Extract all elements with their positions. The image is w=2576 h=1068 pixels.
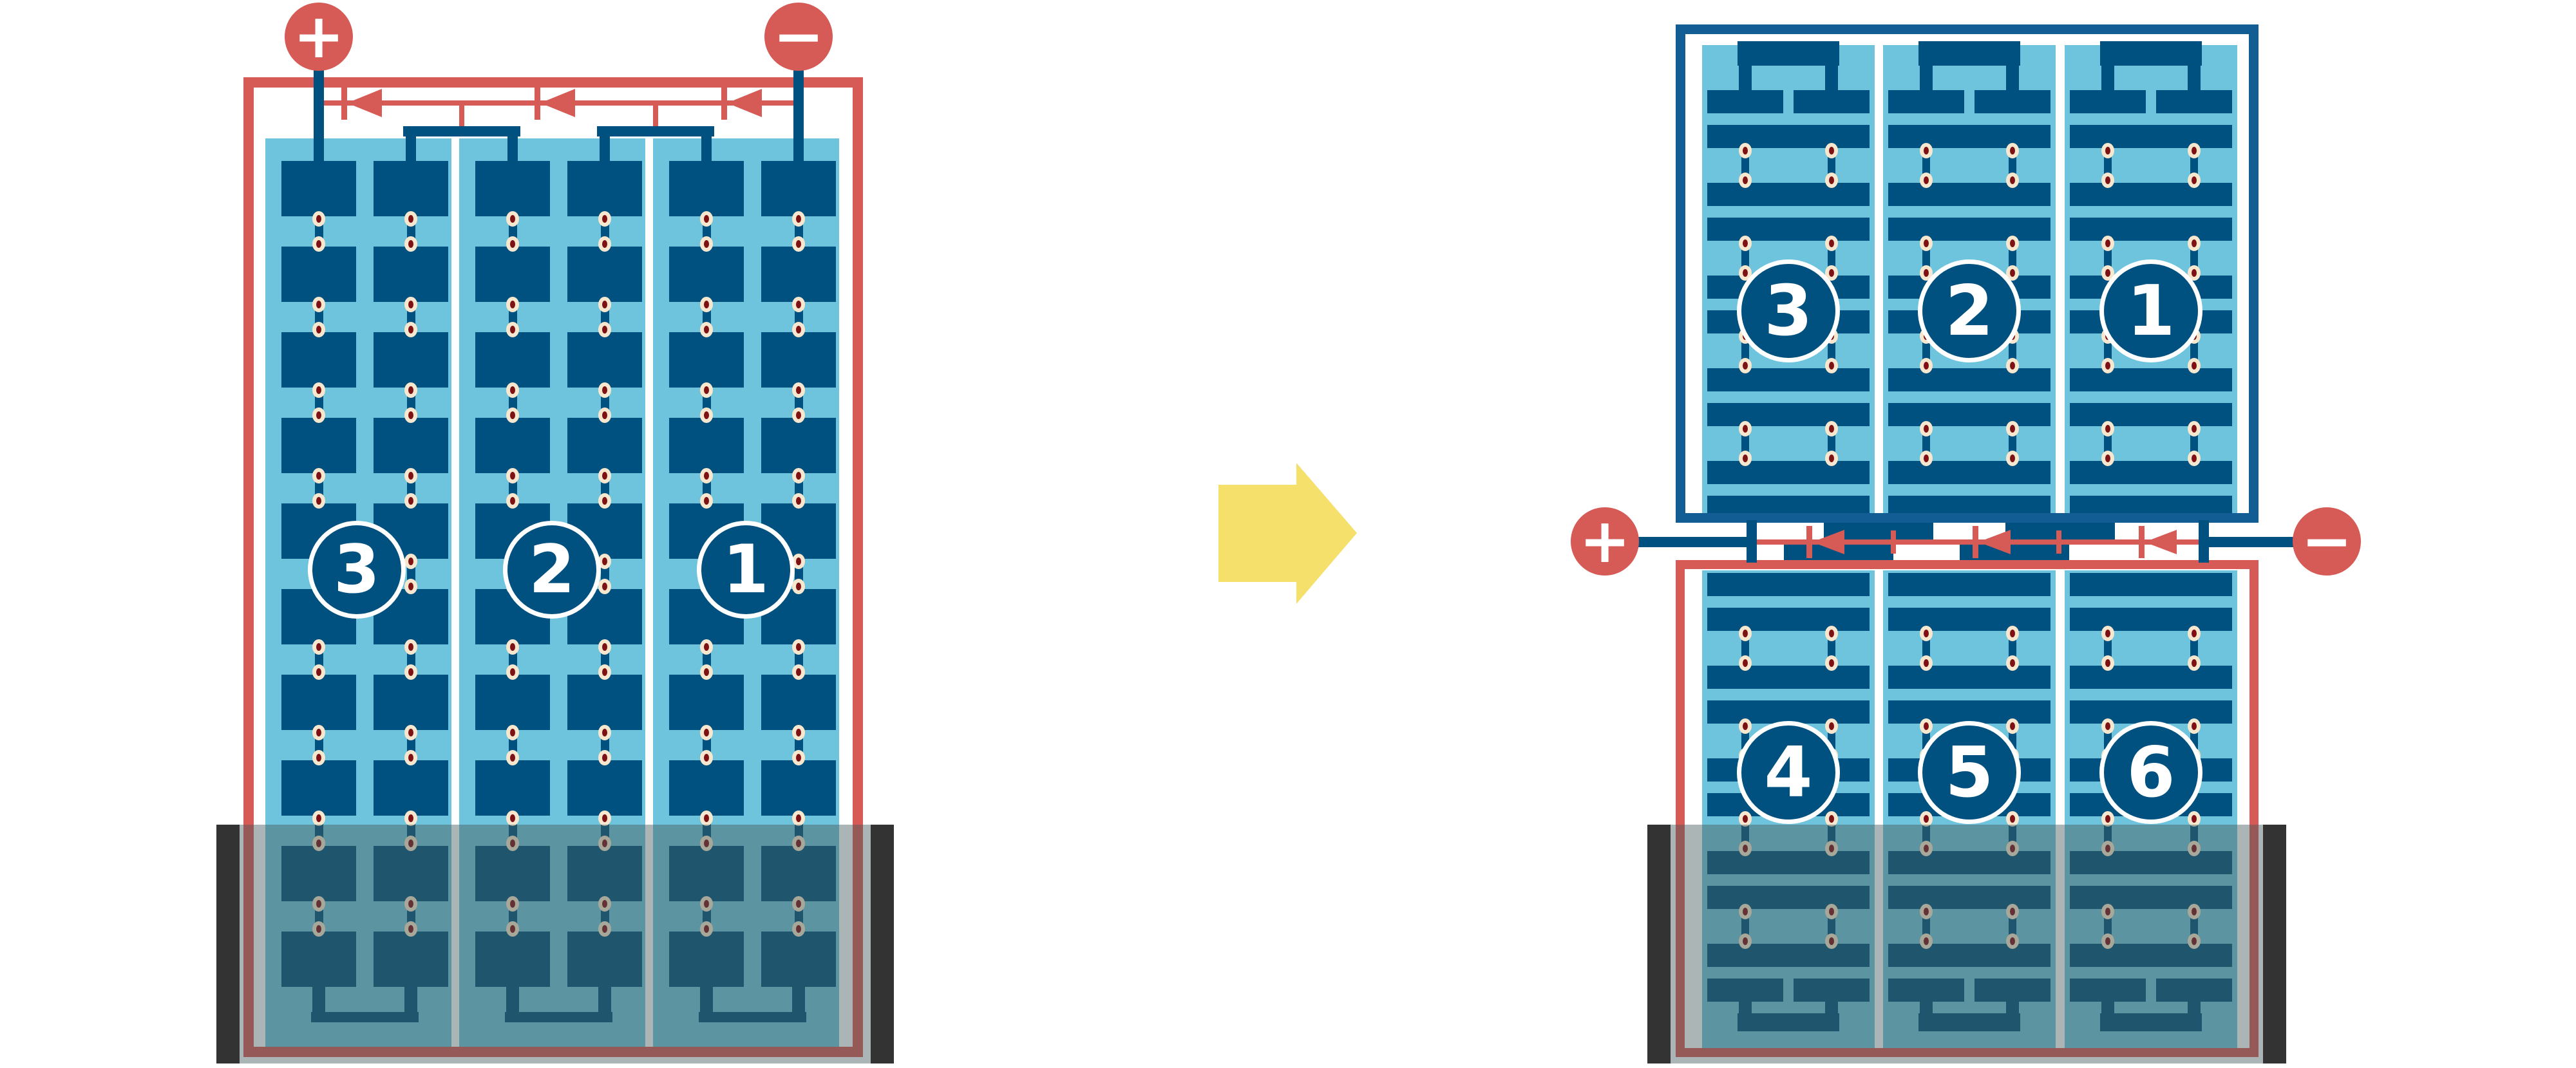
diode-cathode-bar bbox=[341, 86, 347, 120]
shade-overlay bbox=[216, 825, 894, 1063]
positive-terminal-icon: + bbox=[1571, 507, 1639, 576]
negative-terminal-icon-label: − bbox=[773, 6, 824, 68]
diode-cathode-bar bbox=[1973, 526, 1978, 558]
substring-jumper-top-leg bbox=[600, 131, 610, 165]
diode-tap-wire bbox=[459, 106, 464, 126]
substring-jumper-top-leg bbox=[2006, 64, 2019, 94]
substring-jumper-top-bar bbox=[2100, 41, 2202, 66]
diode-junction-tick bbox=[2056, 530, 2061, 554]
substring-number: 5 bbox=[1945, 733, 1993, 813]
diode-arrow bbox=[540, 89, 575, 117]
diode-cathode-bar bbox=[721, 86, 727, 120]
substring-jumper-top-bar bbox=[1738, 41, 1839, 66]
substring-badge-right-top: 2 bbox=[1918, 259, 2021, 362]
negative-terminal-icon-label: − bbox=[2301, 511, 2353, 572]
shade-edge-bar bbox=[1647, 825, 1671, 1063]
shade-overlay bbox=[1647, 825, 2286, 1063]
substring-badge-right-bottom: 6 bbox=[2099, 721, 2202, 824]
substring-badge-left: 3 bbox=[308, 521, 406, 619]
substring-jumper-top-leg bbox=[1920, 64, 1933, 94]
substring-number: 2 bbox=[1945, 271, 1993, 351]
substring-badge-left: 1 bbox=[697, 521, 795, 619]
diode-arrow bbox=[727, 89, 762, 117]
right-arrow-icon bbox=[1218, 463, 1357, 604]
wiring-diagram-canvas: +−321321456+− bbox=[0, 0, 2576, 1068]
diode-tap-wire bbox=[653, 106, 658, 126]
positive-terminal-icon: + bbox=[285, 3, 353, 71]
junction-stub-right bbox=[2199, 520, 2209, 563]
diode-arrow bbox=[1812, 530, 1844, 554]
negative-lead-wire bbox=[793, 57, 804, 193]
substring-jumper-top-bar bbox=[597, 126, 714, 136]
positive-terminal-icon-label: + bbox=[293, 6, 345, 68]
shade-edge-bar bbox=[216, 825, 240, 1063]
substring-number: 1 bbox=[2126, 271, 2175, 351]
substring-number: 2 bbox=[529, 531, 575, 608]
substring-badge-right-top: 1 bbox=[2099, 259, 2202, 362]
substring-jumper-top-leg bbox=[2101, 64, 2114, 94]
shade-edge-bar bbox=[2263, 825, 2286, 1063]
substring-badge-right-bottom: 4 bbox=[1737, 721, 1840, 824]
negative-terminal-icon: − bbox=[2293, 507, 2361, 576]
positive-lead-wire bbox=[1636, 537, 1752, 547]
substring-number: 1 bbox=[723, 531, 769, 608]
diode-junction-tick bbox=[1891, 530, 1896, 554]
substring-badge-right-top: 3 bbox=[1737, 259, 1840, 362]
substring-jumper-top-leg bbox=[701, 131, 712, 165]
positive-terminal-icon-label: + bbox=[1579, 511, 1631, 572]
substring-jumper-top-leg bbox=[507, 131, 518, 165]
negative-lead-wire bbox=[2209, 537, 2299, 547]
diode-arrow bbox=[347, 89, 382, 117]
shade-edge-bar bbox=[871, 825, 894, 1063]
substring-number: 4 bbox=[1764, 733, 1812, 813]
diode-arrow bbox=[1978, 530, 2011, 554]
substring-jumper-top-leg bbox=[1825, 64, 1838, 94]
substring-number: 3 bbox=[334, 531, 380, 608]
substring-number: 3 bbox=[1764, 271, 1812, 351]
substring-jumper-top-bar bbox=[403, 126, 520, 136]
substring-badge-left: 2 bbox=[503, 521, 601, 619]
substring-jumper-top-leg bbox=[406, 131, 416, 165]
diode-cathode-bar bbox=[535, 86, 540, 120]
substring-jumper-top-bar bbox=[1918, 41, 2020, 66]
diode-arrow bbox=[2145, 530, 2177, 554]
substring-number: 6 bbox=[2126, 733, 2175, 813]
positive-lead-wire bbox=[314, 57, 324, 193]
diode-cathode-bar bbox=[2139, 526, 2145, 558]
substring-jumper-top-leg bbox=[1739, 64, 1752, 94]
diode-cathode-bar bbox=[1806, 526, 1812, 558]
substring-jumper-top-leg bbox=[2188, 64, 2201, 94]
negative-terminal-icon: − bbox=[764, 3, 833, 71]
substring-badge-right-bottom: 5 bbox=[1918, 721, 2021, 824]
